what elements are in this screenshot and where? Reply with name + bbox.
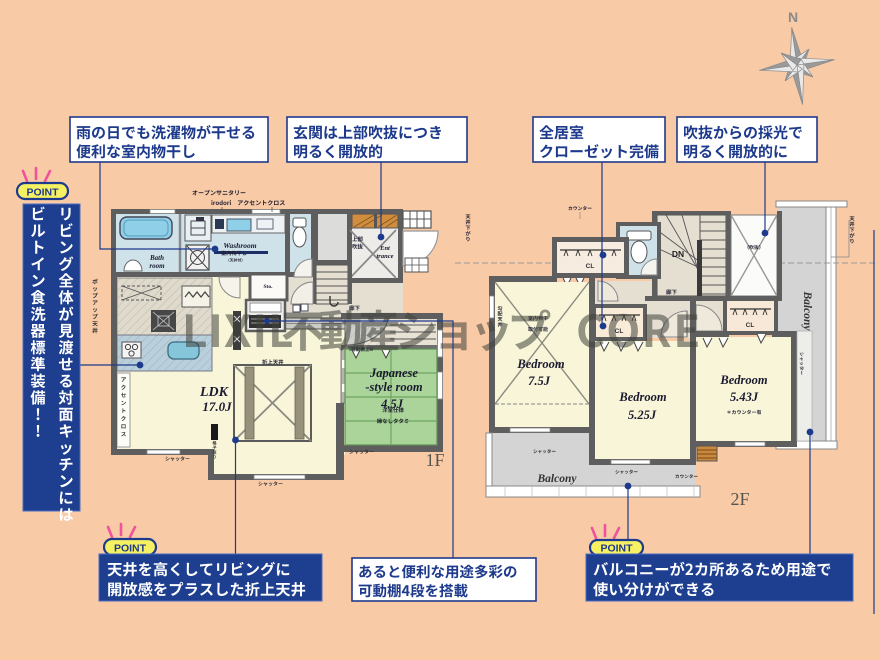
svg-text:LDK: LDK [199,385,230,400]
svg-text:2F: 2F [730,489,749,509]
svg-text:CL: CL [746,322,755,329]
svg-text:POINT: POINT [600,543,633,555]
svg-text:trance: trance [377,253,394,260]
svg-text:1F: 1F [425,450,444,470]
svg-text:5.25J: 5.25J [628,408,657,422]
svg-text:POINT: POINT [26,187,59,199]
svg-text:Bath: Bath [149,254,164,262]
svg-text:Bedroom: Bedroom [719,373,768,387]
svg-text:Balcony: Balcony [801,291,813,332]
svg-text:Japanese: Japanese [369,366,418,380]
svg-text:Washroom: Washroom [223,241,256,250]
svg-text:CL: CL [586,263,595,270]
svg-text:-style room: -style room [365,380,423,394]
svg-text:Balcony: Balcony [537,473,578,485]
svg-text:Sto.: Sto. [263,284,273,290]
svg-text:5.43J: 5.43J [730,390,759,404]
svg-text:POINT: POINT [114,543,147,555]
svg-text:Bedroom: Bedroom [618,390,667,404]
svg-text:CL: CL [615,328,624,335]
svg-text:DN: DN [672,249,684,259]
svg-text:17.0J: 17.0J [202,399,232,414]
svg-text:Bedroom: Bedroom [516,357,565,371]
svg-text:7.5J: 7.5J [528,374,551,388]
svg-text:N: N [788,9,798,25]
svg-text:Ent: Ent [379,245,390,252]
svg-text:room: room [149,262,165,270]
